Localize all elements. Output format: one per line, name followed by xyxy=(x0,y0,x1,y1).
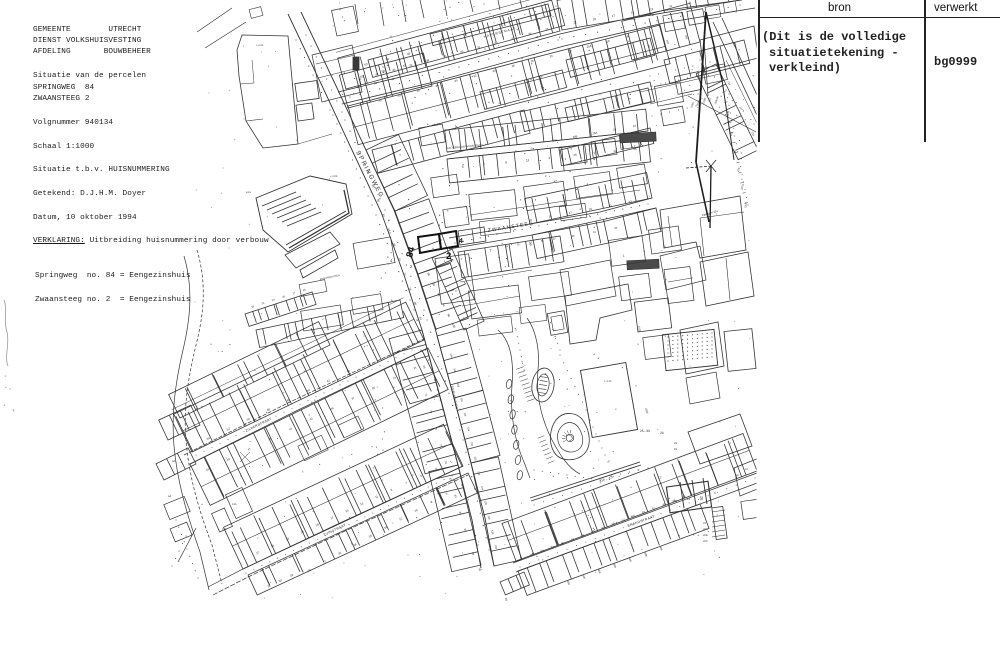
svg-text:42: 42 xyxy=(326,378,331,383)
svg-text:227A: 227A xyxy=(740,183,745,190)
svg-text:167B: 167B xyxy=(648,14,654,17)
svg-text:25: 25 xyxy=(282,295,286,299)
svg-text:39: 39 xyxy=(571,235,575,239)
svg-text:31: 31 xyxy=(413,366,417,370)
svg-text:209A/B: 209A/B xyxy=(714,96,720,105)
svg-text:13: 13 xyxy=(359,501,364,506)
svg-text:21: 21 xyxy=(261,301,265,305)
svg-text:116: 116 xyxy=(466,427,470,432)
svg-text:13A: 13A xyxy=(232,503,237,506)
svg-text:3: 3 xyxy=(714,491,716,495)
svg-text:4A: 4A xyxy=(168,495,171,498)
svg-text:5: 5 xyxy=(462,165,464,169)
svg-text:8: 8 xyxy=(430,500,434,504)
svg-text:4: 4 xyxy=(459,238,463,245)
svg-text:LA21: LA21 xyxy=(630,18,636,21)
svg-text:114: 114 xyxy=(463,412,467,417)
svg-text:19: 19 xyxy=(251,305,255,309)
svg-text:45: 45 xyxy=(407,51,411,56)
svg-text:22: 22 xyxy=(633,124,637,128)
svg-text:22: 22 xyxy=(703,522,706,525)
svg-text:7: 7 xyxy=(405,481,409,485)
svg-text:3: 3 xyxy=(548,156,550,160)
svg-text:84: 84 xyxy=(404,245,418,259)
svg-text:25...33: 25...33 xyxy=(640,429,650,433)
svg-text:29: 29 xyxy=(303,288,307,292)
svg-text:98: 98 xyxy=(446,313,451,318)
svg-text:3: 3 xyxy=(434,467,438,471)
svg-text:110: 110 xyxy=(459,397,463,402)
svg-text:22: 22 xyxy=(568,49,572,54)
svg-text:23: 23 xyxy=(272,298,276,302)
svg-text:122: 122 xyxy=(477,471,481,476)
svg-text:2: 2 xyxy=(410,264,413,269)
svg-text:11: 11 xyxy=(526,158,530,162)
svg-text:40D: 40D xyxy=(612,563,617,569)
svg-text:40C: 40C xyxy=(628,557,633,563)
svg-text:91: 91 xyxy=(478,568,482,572)
svg-text:10: 10 xyxy=(414,508,419,513)
svg-text:73: 73 xyxy=(429,410,433,414)
svg-text:11: 11 xyxy=(374,494,379,499)
svg-text:34: 34 xyxy=(454,78,458,83)
svg-text:126: 126 xyxy=(483,500,487,505)
svg-text:16: 16 xyxy=(504,597,509,601)
svg-text:17: 17 xyxy=(611,14,615,19)
svg-text:128: 128 xyxy=(487,515,491,520)
svg-text:11A: 11A xyxy=(222,528,227,531)
svg-text:118: 118 xyxy=(470,442,474,447)
svg-text:41: 41 xyxy=(593,231,597,235)
svg-text:37: 37 xyxy=(351,397,355,401)
svg-text:4: 4 xyxy=(643,249,646,253)
svg-text:48: 48 xyxy=(266,407,271,412)
svg-text:88: 88 xyxy=(431,282,436,287)
svg-text:18: 18 xyxy=(353,542,358,547)
svg-text:83: 83 xyxy=(453,494,457,498)
svg-text:17: 17 xyxy=(330,515,335,520)
svg-text:20C: 20C xyxy=(703,540,708,543)
svg-text:15: 15 xyxy=(631,10,635,15)
svg-text:31: 31 xyxy=(517,243,521,246)
svg-text:21: 21 xyxy=(674,441,678,445)
svg-text:27: 27 xyxy=(255,550,260,555)
svg-text:219: 219 xyxy=(726,81,731,87)
svg-text:225: 225 xyxy=(737,167,741,172)
svg-text:6A: 6A xyxy=(172,460,175,463)
svg-text:47: 47 xyxy=(247,447,251,451)
svg-text:26: 26 xyxy=(530,59,534,64)
svg-text:7: 7 xyxy=(483,163,485,167)
svg-text:94: 94 xyxy=(441,303,446,308)
svg-text:40B: 40B xyxy=(643,552,648,558)
svg-text:86: 86 xyxy=(426,272,431,277)
svg-text:41: 41 xyxy=(310,417,314,421)
svg-text:41A ... 41H: 41A ... 41H xyxy=(599,475,614,483)
svg-text:28: 28 xyxy=(511,63,515,68)
svg-text:26: 26 xyxy=(736,474,739,477)
svg-text:130: 130 xyxy=(490,530,494,535)
svg-text:63: 63 xyxy=(364,62,368,67)
svg-text:134: 134 xyxy=(494,545,498,550)
svg-text:23: 23 xyxy=(660,431,664,435)
svg-text:23: 23 xyxy=(285,536,290,541)
svg-text:15: 15 xyxy=(573,153,577,157)
svg-text:17: 17 xyxy=(568,210,572,215)
svg-text:43: 43 xyxy=(682,494,687,499)
svg-text:71: 71 xyxy=(424,393,428,397)
svg-text:+ 2.61: + 2.61 xyxy=(256,44,264,47)
svg-text:69: 69 xyxy=(422,365,426,369)
svg-text:40F: 40F xyxy=(581,575,586,581)
svg-text:21: 21 xyxy=(573,20,577,25)
svg-text:12: 12 xyxy=(398,516,403,521)
svg-text:27: 27 xyxy=(292,291,296,295)
svg-text:37: 37 xyxy=(553,238,557,241)
svg-text:40E: 40E xyxy=(597,569,602,575)
svg-text:203: 203 xyxy=(665,39,669,45)
svg-text:22: 22 xyxy=(745,468,748,471)
svg-text:36: 36 xyxy=(435,83,439,88)
svg-text:28: 28 xyxy=(289,573,294,578)
svg-text:205: 205 xyxy=(684,35,688,41)
svg-text:15: 15 xyxy=(345,508,350,513)
svg-text:100: 100 xyxy=(451,323,457,329)
svg-text:33: 33 xyxy=(392,376,396,380)
svg-text:21: 21 xyxy=(608,203,612,208)
svg-text:79: 79 xyxy=(443,461,447,465)
svg-text:13: 13 xyxy=(687,497,691,501)
svg-text:35: 35 xyxy=(372,386,376,390)
svg-text:124: 124 xyxy=(480,486,484,491)
svg-text:4.11: 4.11 xyxy=(246,191,251,194)
svg-text:18: 18 xyxy=(606,39,610,44)
svg-text:40: 40 xyxy=(346,369,351,374)
svg-text:40A: 40A xyxy=(659,546,664,552)
svg-text:32: 32 xyxy=(267,583,272,588)
svg-text:24: 24 xyxy=(549,54,553,59)
svg-text:30: 30 xyxy=(278,578,283,583)
svg-text:19: 19 xyxy=(315,522,320,527)
svg-text:20B: 20B xyxy=(703,534,708,537)
svg-text:16: 16 xyxy=(368,533,373,538)
svg-text:4: 4 xyxy=(390,258,393,263)
svg-text:19: 19 xyxy=(592,17,596,22)
svg-text:49: 49 xyxy=(227,458,231,462)
svg-text:43: 43 xyxy=(289,427,293,431)
svg-text:78: 78 xyxy=(408,287,412,291)
svg-text:20A: 20A xyxy=(586,44,592,49)
svg-text:26A: 26A xyxy=(592,132,597,136)
svg-text:19: 19 xyxy=(588,207,592,212)
svg-text:32: 32 xyxy=(473,73,477,78)
svg-text:19: 19 xyxy=(674,447,678,451)
svg-text:1: 1 xyxy=(449,460,453,464)
svg-text:24: 24 xyxy=(613,128,617,132)
svg-text:215C: 215C xyxy=(690,102,695,109)
svg-text:39: 39 xyxy=(330,407,334,411)
svg-text:20: 20 xyxy=(337,551,342,556)
svg-text:9: 9 xyxy=(505,160,507,164)
svg-text:102E: 102E xyxy=(644,407,649,414)
svg-text:15: 15 xyxy=(548,214,552,219)
svg-text:50: 50 xyxy=(246,417,251,422)
svg-text:40G: 40G xyxy=(566,580,571,586)
svg-text:7: 7 xyxy=(489,249,492,253)
svg-text:23: 23 xyxy=(628,199,632,204)
svg-text:13: 13 xyxy=(650,7,654,12)
svg-text:57: 57 xyxy=(403,63,407,68)
svg-text:20: 20 xyxy=(700,497,704,501)
svg-text:120: 120 xyxy=(473,456,477,461)
svg-text:22: 22 xyxy=(322,559,327,564)
svg-text:89: 89 xyxy=(471,552,475,556)
svg-text:17: 17 xyxy=(593,151,597,155)
svg-text:+ 3.15: + 3.15 xyxy=(604,380,612,383)
svg-text:25: 25 xyxy=(270,543,275,548)
svg-text:49: 49 xyxy=(356,86,360,90)
svg-text:217: 217 xyxy=(708,97,712,103)
svg-text:52: 52 xyxy=(226,426,231,431)
svg-text:213B: 213B xyxy=(702,98,707,105)
svg-text:59: 59 xyxy=(385,57,389,62)
svg-text:9: 9 xyxy=(390,488,394,492)
svg-text:+ 2.06: + 2.06 xyxy=(330,175,338,178)
svg-text:42: 42 xyxy=(378,98,382,103)
svg-text:21: 21 xyxy=(300,529,305,534)
svg-text:43: 43 xyxy=(614,227,618,231)
svg-text:108: 108 xyxy=(456,383,460,388)
svg-text:2: 2 xyxy=(622,254,625,258)
